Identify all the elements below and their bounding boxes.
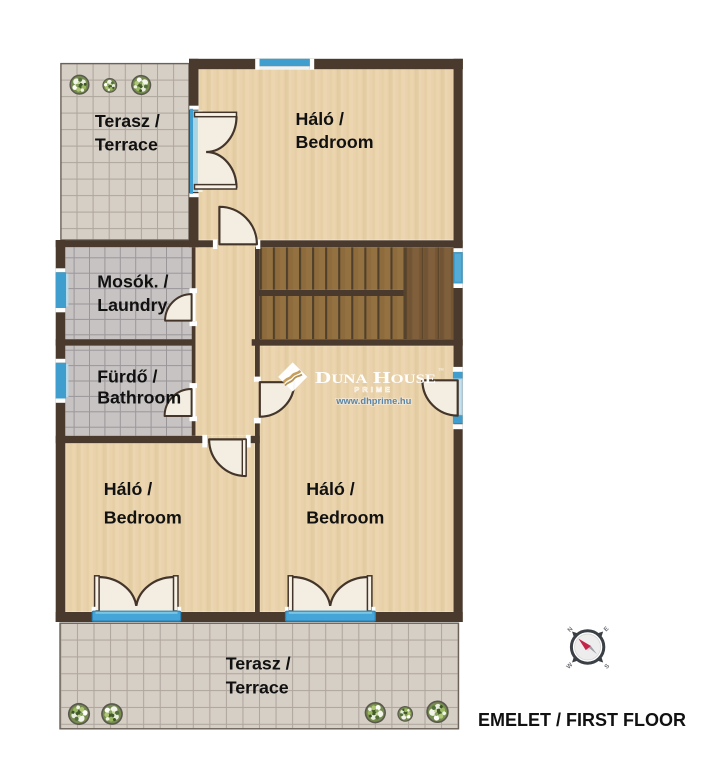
svg-text:Bathroom: Bathroom [97,388,181,408]
svg-text:EMELET / FIRST FLOOR: EMELET / FIRST FLOOR [478,710,686,730]
svg-text:Terrace: Terrace [95,134,158,154]
svg-text:Bedroom: Bedroom [104,508,182,528]
svg-text:Bedroom: Bedroom [306,507,384,527]
svg-text:Háló /: Háló / [296,109,344,129]
svg-text:Laundry: Laundry [97,295,167,315]
svg-text:Terrace: Terrace [226,678,289,698]
svg-text:Terasz /: Terasz / [226,653,291,673]
svg-text:Fürdő /: Fürdő / [97,367,157,387]
svg-text:Mosók. /: Mosók. / [97,272,168,292]
svg-text:PRIME: PRIME [354,385,393,394]
svg-text:Háló /: Háló / [104,479,152,499]
svg-text:S: S [603,663,611,671]
svg-text:Terasz /: Terasz / [95,111,160,131]
svg-text:Bedroom: Bedroom [296,132,374,152]
svg-text:www.dhprime.hu: www.dhprime.hu [335,395,411,406]
svg-text:W: W [565,661,574,670]
svg-text:™: ™ [438,368,444,374]
svg-text:Háló /: Háló / [306,479,354,499]
svg-text:E: E [603,625,611,633]
